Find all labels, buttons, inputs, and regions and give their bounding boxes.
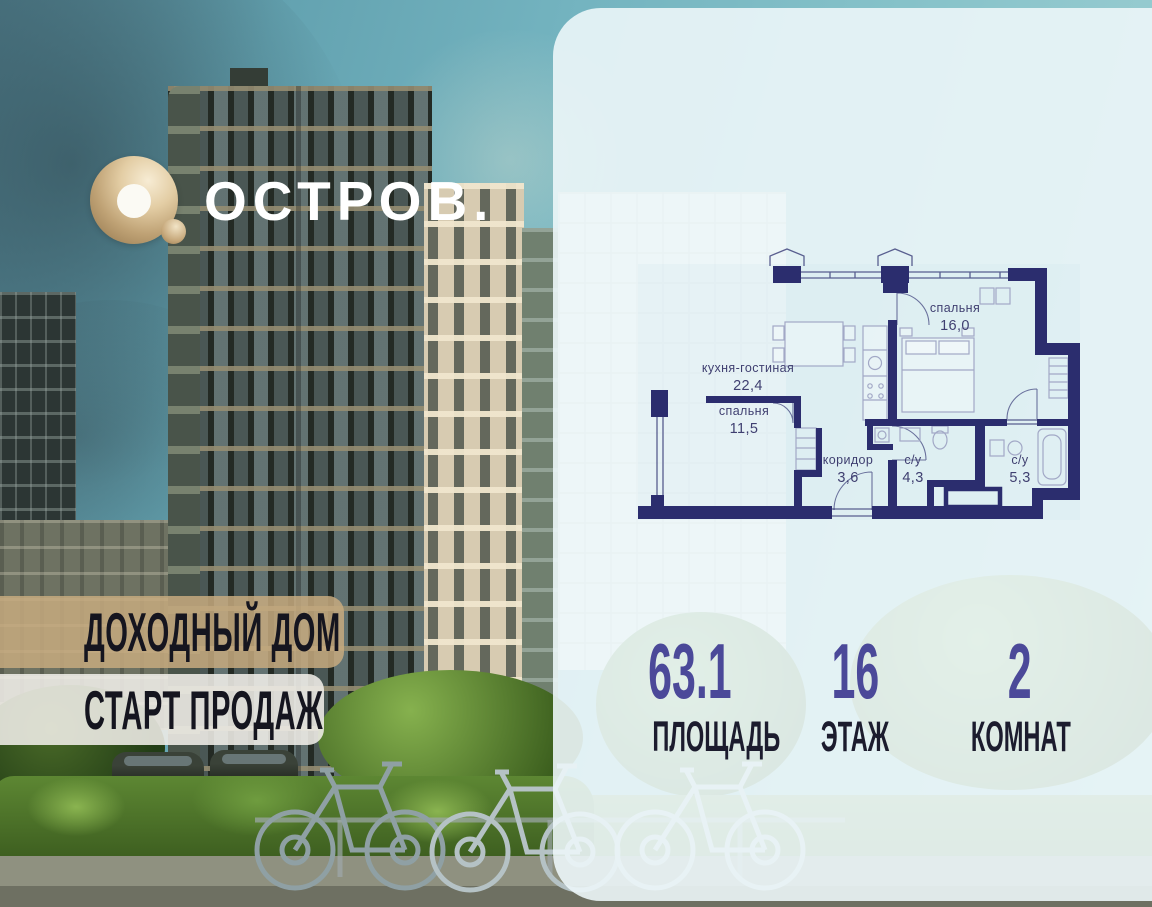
floor-plan: кухня-гостиная 22,4 спальня 16,0 спальня… <box>630 248 1100 533</box>
flyer-root: ОСТРОВ. ДОХОДНЫЙ ДОМ СТАРТ ПРОДАЖ <box>0 0 1152 907</box>
ostrov-dot-icon <box>161 219 186 244</box>
room-area-bath-43: 4,3 <box>902 470 923 486</box>
banner-start-prodazh: СТАРТ ПРОДАЖ <box>0 674 324 745</box>
room-label-kitchen-living: кухня-гостиная <box>702 361 794 375</box>
room-area-corridor: 3,6 <box>837 470 858 486</box>
stat-rooms-label: КОМНАТ <box>930 716 1110 759</box>
ostrov-o-icon <box>90 156 178 244</box>
room-area-bath-53: 5,3 <box>1009 470 1030 486</box>
stat-area: 63.1 ПЛОЩАДЬ <box>600 634 780 759</box>
stat-rooms-value: 2 <box>1008 634 1032 708</box>
stat-rooms: 2 КОМНАТ <box>930 634 1110 759</box>
room-area-kitchen-living: 22,4 <box>733 378 763 394</box>
room-label-bedroom-16: спальня <box>930 301 980 315</box>
stat-area-value: 63.1 <box>648 634 731 708</box>
brand-name: ОСТРОВ. <box>204 169 494 233</box>
banner-label: СТАРТ ПРОДАЖ <box>84 678 323 742</box>
brand-logo: ОСТРОВ. <box>90 156 494 244</box>
room-label-bedroom-11: спальня <box>719 404 769 418</box>
banner-label: ДОХОДНЫЙ ДОМ <box>84 600 341 664</box>
banner-dohodny-dom: ДОХОДНЫЙ ДОМ <box>0 596 344 668</box>
stat-area-label: ПЛОЩАДЬ <box>600 716 780 759</box>
stat-floor-value: 16 <box>831 634 879 708</box>
room-label-bath-53: с/у <box>1011 453 1029 467</box>
stat-floor-label: ЭТАЖ <box>765 716 945 759</box>
stat-floor: 16 ЭТАЖ <box>765 634 945 759</box>
room-area-bedroom-11: 11,5 <box>730 421 759 437</box>
bike-icon <box>257 764 443 888</box>
room-label-bath-43: с/у <box>904 453 922 467</box>
room-label-corridor: коридор <box>823 453 874 467</box>
room-area-bedroom-16: 16,0 <box>940 318 970 334</box>
